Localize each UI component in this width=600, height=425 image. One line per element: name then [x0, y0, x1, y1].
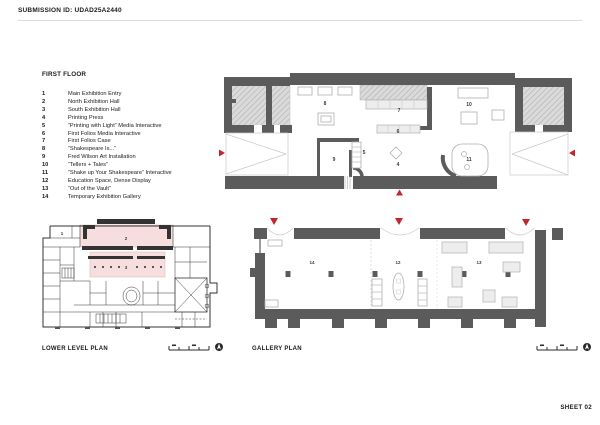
scale-bar: [536, 343, 578, 353]
legend-item-number: 4: [42, 115, 68, 123]
legend-item-label: “Tellers + Tales”: [68, 162, 217, 170]
north-arrow-icon: [582, 342, 592, 352]
lower-level-plan-title: LOWER LEVEL PLAN: [42, 346, 108, 352]
room-number-label: 8: [324, 101, 327, 107]
first-floor-plan: 8 7 10 6 9 5 4 11: [206, 55, 578, 205]
legend-item: 5“Printing with Light” Media Interactive: [42, 123, 217, 131]
legend-item: 2North Exhibition Hall: [42, 99, 217, 107]
legend-item: 14Temporary Exhibition Gallery: [42, 194, 217, 202]
legend-item-label: North Exhibition Hall: [68, 99, 217, 107]
room-number-label: 14: [309, 260, 315, 265]
header-divider: [18, 20, 582, 21]
legend-item-number: 14: [42, 194, 68, 202]
legend-item: 1Main Exhibition Entry: [42, 91, 217, 99]
legend-item-number: 1: [42, 91, 68, 99]
legend-item: 4Printing Press: [42, 115, 217, 123]
scale-bar: [168, 343, 210, 353]
legend-item-label: “Out of the Vault”: [68, 186, 217, 194]
legend-item-number: 2: [42, 99, 68, 107]
legend-item-label: Main Exhibition Entry: [68, 91, 217, 99]
lower-level-plan: 1 2 3: [40, 216, 226, 340]
legend-item: 10“Tellers + Tales”: [42, 162, 217, 170]
legend-item-label: “Shake up Your Shakespeare” Interactive: [68, 170, 217, 178]
room-number-label: 6: [397, 129, 400, 135]
room-number-label: 12: [395, 260, 401, 265]
room-number-label: 4: [397, 162, 400, 168]
gallery-plan: 14 12 13: [248, 212, 584, 338]
legend-item-number: 7: [42, 138, 68, 146]
legend-item: 11“Shake up Your Shakespeare” Interactiv…: [42, 170, 217, 178]
legend-item-label: First Folios Case: [68, 138, 217, 146]
furniture: [265, 240, 523, 309]
legend-item-number: 9: [42, 154, 68, 162]
legend-item: 3South Exhibition Hall: [42, 107, 217, 115]
legend-item-label: Fred Wilson Art Installation: [68, 154, 217, 162]
sheet-number: SHEET 02: [560, 404, 592, 411]
room-number-label: 1: [61, 231, 64, 236]
legend-item-number: 8: [42, 146, 68, 154]
room-number-label: 10: [466, 102, 472, 108]
legend-title: FIRST FLOOR: [42, 71, 217, 78]
room-number-label: 5: [363, 150, 366, 156]
curved-wall: [353, 168, 362, 177]
legend-item-number: 11: [42, 170, 68, 178]
room-number-label: 9: [333, 157, 336, 163]
room-number-label: 13: [476, 260, 482, 265]
legend-item: 6First Folios Media Interactive: [42, 131, 217, 139]
room-number-labels: 14 12 13: [309, 260, 482, 265]
legend-item-label: Temporary Exhibition Gallery: [68, 194, 217, 202]
gallery-plan-title: GALLERY PLAN: [252, 346, 302, 352]
legend-item-label: “Shakespeare Is...”: [68, 146, 217, 154]
legend-item-label: Printing Press: [68, 115, 217, 123]
submission-sheet: SUBMISSION ID: UDAD25A2440 FIRST FLOOR 1…: [0, 0, 600, 425]
legend-item: 7First Folios Case: [42, 138, 217, 146]
room-number-label: 11: [466, 157, 472, 163]
north-arrow-icon: [214, 342, 224, 352]
furniture: [298, 87, 504, 176]
legend-item: 9Fred Wilson Art Installation: [42, 154, 217, 162]
legend-item-label: South Exhibition Hall: [68, 107, 217, 115]
legend-item-label: Education Space, Dense Display: [68, 178, 217, 186]
room-number-labels: 8 7 10 6 9 5 4 11: [324, 101, 472, 168]
legend-item-label: “Printing with Light” Media Interactive: [68, 123, 217, 131]
legend-item-number: 5: [42, 123, 68, 131]
legend-item: 12Education Space, Dense Display: [42, 178, 217, 186]
legend-item-number: 3: [42, 107, 68, 115]
room-number-label: 7: [398, 108, 401, 114]
legend-item: 8“Shakespeare Is...”: [42, 146, 217, 154]
legend-item-number: 13: [42, 186, 68, 194]
legend-item: 13“Out of the Vault”: [42, 186, 217, 194]
submission-id: SUBMISSION ID: UDAD25A2440: [18, 7, 122, 14]
legend-item-number: 12: [42, 178, 68, 186]
direction-marker-icon: [270, 218, 530, 226]
legend-item-number: 10: [42, 162, 68, 170]
legend-item-number: 6: [42, 131, 68, 139]
legend: FIRST FLOOR 1Main Exhibition Entry 2Nort…: [42, 71, 217, 202]
legend-item-label: First Folios Media Interactive: [68, 131, 217, 139]
